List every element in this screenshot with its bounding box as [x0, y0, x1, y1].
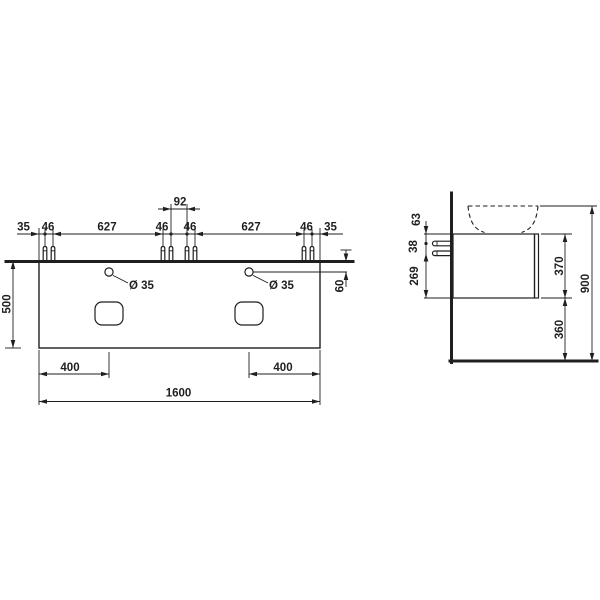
cutout-left: [95, 302, 123, 325]
dim-label-60: 60: [335, 280, 347, 293]
dim-label-400-right: 400: [273, 362, 292, 374]
bolt-top: [433, 241, 453, 246]
dim-label-92: 92: [174, 197, 187, 209]
dim-label-360: 360: [554, 320, 566, 339]
dimension-drawing-canvas: Ø 35 Ø 35: [0, 0, 600, 600]
washbasin-outline: [468, 206, 538, 233]
leader-left: [113, 275, 128, 283]
cutout-right: [235, 302, 263, 325]
front-view: Ø 35 Ø 35: [2, 197, 354, 406]
dim-label-46-2: 46: [156, 222, 169, 234]
bolt-bottom: [433, 251, 453, 256]
dim-label-627-right: 627: [241, 222, 260, 234]
dimension-labels-front: 35 46 627 46 46 627 46 35 92 500 60 400 …: [2, 197, 347, 400]
mounting-studs: [43, 247, 314, 262]
cabinet-outline: [453, 234, 539, 298]
faucet-hole-right: [245, 268, 253, 276]
dim-label-500: 500: [2, 294, 14, 313]
dim-label-269: 269: [409, 266, 421, 285]
stud: [310, 247, 314, 262]
stud: [51, 247, 55, 262]
dim-label-46-1: 46: [42, 222, 55, 234]
dim-label-38: 38: [408, 240, 420, 253]
stud: [302, 247, 306, 262]
stud: [185, 247, 189, 262]
dim-label-hole-left: Ø 35: [129, 280, 155, 292]
stud: [161, 247, 165, 262]
countertop-outline: [39, 261, 320, 348]
dim-label-400-left: 400: [60, 362, 79, 374]
faucet-holes: Ø 35 Ø 35: [105, 268, 347, 292]
dim-label-35-right: 35: [324, 222, 337, 234]
stud: [193, 247, 197, 262]
dim-label-627-left: 627: [97, 222, 116, 234]
dim-label-hole-right: Ø 35: [269, 280, 295, 292]
basin-cutouts: [95, 302, 263, 325]
side-view: 63 38 269 370 360 900: [408, 193, 597, 363]
stud: [43, 247, 47, 262]
dim-label-46-4: 46: [300, 222, 313, 234]
stud: [169, 247, 173, 262]
dim-label-370: 370: [554, 256, 566, 275]
leader-right: [253, 275, 268, 283]
dim-label-900: 900: [580, 274, 592, 293]
faucet-hole-left: [105, 268, 113, 276]
technical-drawing-page: Ø 35 Ø 35: [0, 0, 600, 600]
dim-label-1600: 1600: [166, 388, 192, 400]
dim-label-63: 63: [411, 213, 423, 226]
dimension-lines-front: [11, 207, 352, 404]
dim-label-35-left: 35: [17, 222, 30, 234]
dim-label-46-3: 46: [184, 222, 197, 234]
wall-bolts: [433, 241, 453, 255]
